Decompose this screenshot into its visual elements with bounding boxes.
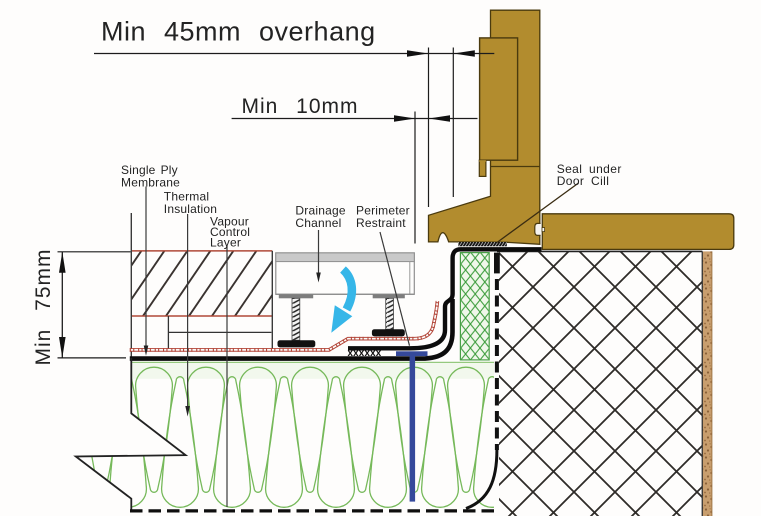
svg-text:Layer: Layer xyxy=(210,236,241,250)
svg-text:Min 45mm overhang: Min 45mm overhang xyxy=(101,17,376,47)
svg-text:Membrane: Membrane xyxy=(121,176,180,190)
svg-text:Door Cill: Door Cill xyxy=(557,174,610,188)
svg-text:xxxxxx: xxxxxx xyxy=(348,348,382,359)
svg-text:Channel: Channel xyxy=(295,216,341,230)
svg-text:Min 75mm: Min 75mm xyxy=(32,248,55,365)
svg-text:Restraint: Restraint xyxy=(356,216,406,230)
svg-text:Min 10mm: Min 10mm xyxy=(242,95,359,118)
